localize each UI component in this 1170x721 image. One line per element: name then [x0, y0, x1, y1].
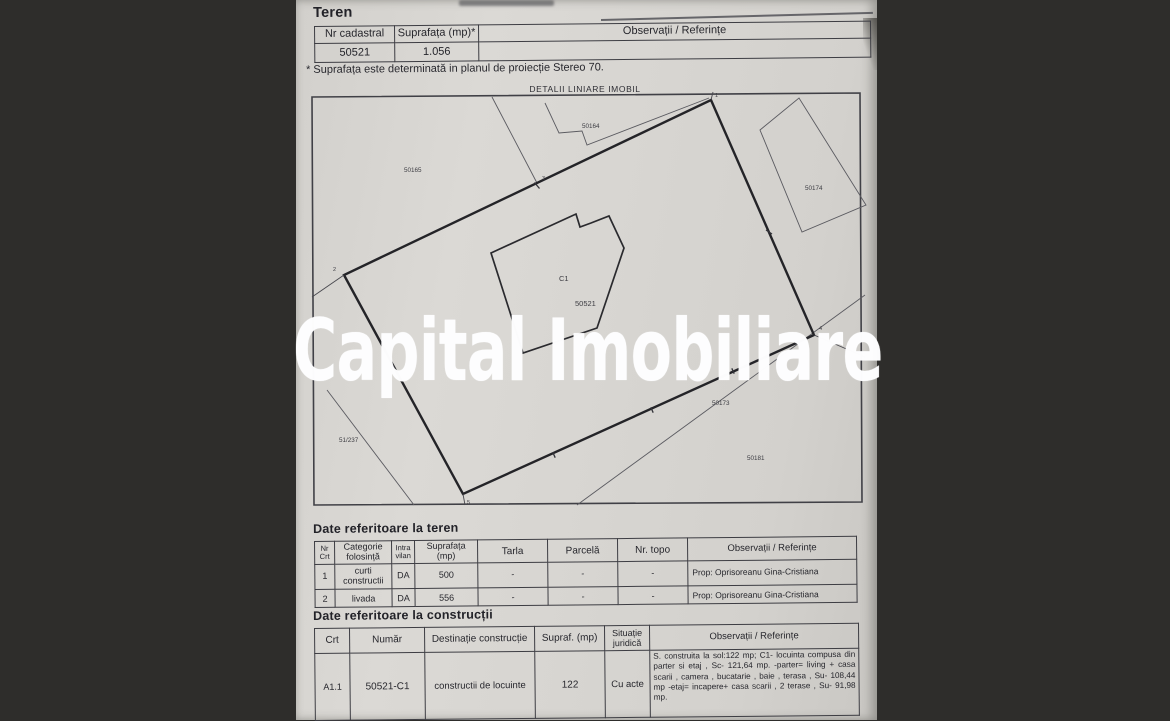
col-crt: Crt: [315, 628, 350, 653]
cell-situatie: Cu acte: [605, 650, 651, 717]
cell: 1: [315, 564, 335, 589]
col-tarla: Tarla: [477, 539, 547, 563]
cell: curti constructii: [335, 564, 392, 590]
col-numar: Număr: [350, 627, 425, 653]
teren-details-row-2: 2 livada DA 556 - - - Prop: Oprisoreanu …: [315, 584, 857, 607]
col-suprafata: Suprafața (mp): [415, 540, 478, 564]
teren-details-heading: Date referitoare la teren: [313, 521, 458, 536]
teren-details-table: Nr Crt Categorie folosință Intra vilan S…: [314, 536, 858, 608]
col-intravilan: Intra vilan: [392, 541, 415, 564]
cell: 556: [415, 588, 478, 607]
col-parcela: Parcelă: [547, 539, 617, 563]
cell: DA: [392, 589, 415, 607]
cell: -: [548, 587, 618, 606]
cell: 2: [315, 589, 335, 607]
cell: 500: [415, 563, 478, 589]
screenshot-root: { "watermark": { "text": "Capital Imobil…: [0, 0, 1170, 720]
col-categorie: Categorie folosință: [335, 541, 392, 565]
cell-numar: 50521-C1: [350, 652, 426, 720]
col-supraf: Supraf. (mp): [534, 626, 604, 652]
col-nr-crt: Nr Crt: [315, 541, 335, 564]
cell: livada: [335, 589, 392, 608]
cell: -: [618, 561, 688, 587]
col-observatii: Observații / Referințe: [649, 623, 858, 650]
cell-destinatie: constructii de locuinte: [425, 651, 536, 719]
constructii-heading: Date referitoare la construcții: [313, 607, 493, 623]
col-destinatie: Destinație construcție: [424, 626, 534, 652]
constructii-table: Crt Număr Destinație construcție Supraf.…: [314, 623, 860, 721]
constructii-data-row: A1.1 50521-C1 constructii de locuinte 12…: [315, 648, 860, 720]
document-lower-layer: Date referitoare la teren Nr Crt Categor…: [296, 0, 877, 720]
col-situatie: Situație juridică: [604, 625, 649, 650]
cell-crt: A1.1: [315, 653, 351, 720]
cell: -: [478, 587, 548, 606]
cell-observatii: S. construita la sol:122 mp; C1- locuint…: [650, 648, 860, 717]
cell-proprietar: Prop: Oprisoreanu Gina-Cristiana: [688, 584, 857, 604]
cell: -: [548, 562, 618, 588]
cell: -: [618, 586, 688, 605]
cell-proprietar: Prop: Oprisoreanu Gina-Cristiana: [688, 559, 857, 586]
cell: DA: [392, 564, 415, 589]
cell: -: [478, 562, 548, 588]
col-observatii: Observații / Referințe: [687, 536, 856, 561]
col-nr-topo: Nr. topo: [617, 538, 687, 562]
cell-supraf: 122: [535, 651, 606, 719]
